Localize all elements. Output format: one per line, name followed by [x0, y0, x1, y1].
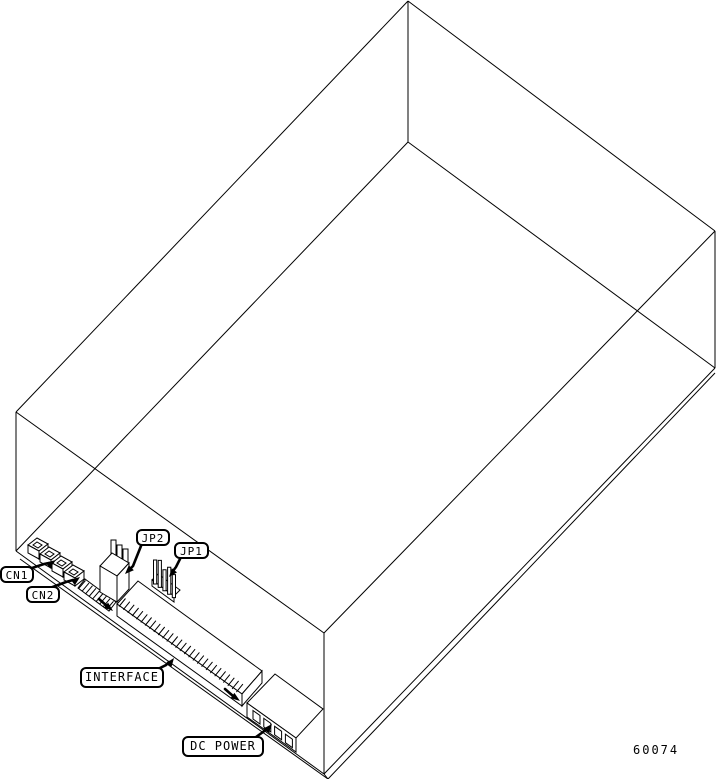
callout-interface: INTERFACE [80, 667, 164, 688]
callout-jp2: JP2 [136, 529, 170, 546]
figure-number: 60074 [633, 743, 679, 757]
callout-jp1-label: JP1 [180, 545, 203, 558]
callout-cn1-label: CN1 [6, 569, 29, 582]
connector-jp2 [100, 540, 129, 602]
callout-dc-power-label: DC POWER [190, 739, 256, 753]
diagram-canvas [0, 0, 717, 779]
drive-connector-diagram: CN1 CN2 JP2 JP1 INTERFACE DC POWER 60074 [0, 0, 717, 779]
chassis-wireframe [16, 1, 715, 774]
callout-cn2: CN2 [26, 586, 60, 603]
callout-interface-label: INTERFACE [85, 670, 159, 684]
callout-dc-power: DC POWER [182, 736, 264, 757]
callout-cn2-label: CN2 [32, 589, 55, 602]
callout-jp1: JP1 [174, 542, 209, 559]
callout-cn1: CN1 [0, 566, 34, 583]
callout-jp2-label: JP2 [142, 532, 165, 545]
